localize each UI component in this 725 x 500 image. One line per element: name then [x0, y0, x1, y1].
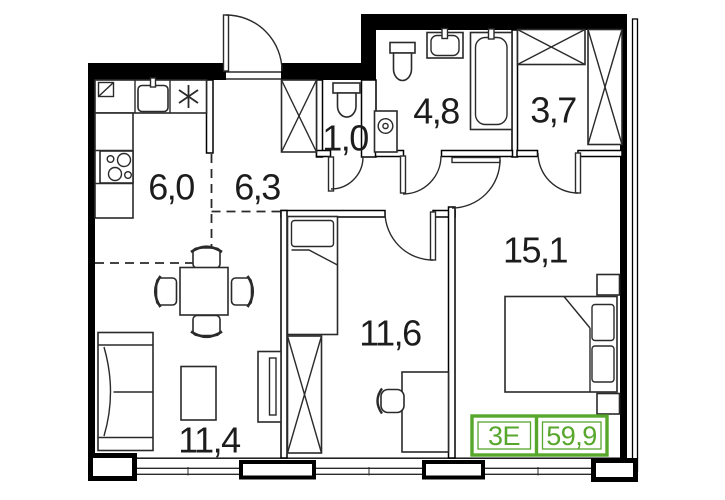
wardrobe-icon [288, 336, 322, 453]
room-label-bedroom: 15,1 [503, 230, 568, 271]
facade-line [633, 19, 638, 471]
toilet-icon [390, 43, 415, 81]
corner-pier-right [594, 461, 636, 480]
coffee-table [181, 367, 216, 421]
dining-chair [155, 276, 176, 307]
floor-plan-image: 6,0 6,3 1,0 4,8 3,7 15,1 11,6 11,4 3E 59… [0, 0, 725, 500]
washing-machine-icon [375, 111, 398, 152]
bedroom-furniture [505, 275, 620, 415]
dining-chair [191, 247, 222, 268]
room-label-bathroom: 4,8 [413, 91, 459, 132]
wall-dressing-bottom [578, 151, 622, 157]
bedroom-door [452, 158, 500, 209]
wall-bedrooms-divider [449, 207, 456, 458]
dining-chair [191, 316, 222, 337]
badge-total-area: 59,9 [546, 421, 597, 451]
bathroom-sink-icon [427, 29, 463, 59]
room-label-living: 11,4 [178, 420, 240, 461]
hall-wardrobe-icon [282, 80, 317, 152]
bathtub-icon [471, 29, 513, 130]
room-label-dressing: 3,7 [530, 90, 576, 131]
room-label-bedroom-2: 11,6 [359, 313, 421, 354]
floor-plan-page: 6,0 6,3 1,0 4,8 3,7 15,1 11,6 11,4 3E 59… [0, 0, 725, 500]
wall-bath-bottom [442, 151, 513, 157]
area-badge: 3E 59,9 [472, 416, 607, 455]
room-label-kitchen: 6,0 [148, 167, 194, 208]
corner-pier-left [91, 456, 135, 479]
double-bed [505, 297, 617, 393]
single-bed [288, 217, 338, 335]
badge-plan-type: 3E [488, 421, 520, 451]
bedroom-2-door [385, 212, 436, 260]
wall-top-right [361, 14, 627, 30]
window-bedroom [485, 467, 591, 476]
wc-toilet-icon [333, 83, 360, 117]
wall-dressing-bottom [517, 151, 538, 157]
sofa [98, 333, 153, 451]
dressing-room-door [538, 153, 581, 193]
wall-kitchen-partial [207, 80, 214, 153]
wc-door [329, 157, 364, 191]
wall-left [88, 63, 95, 458]
desk [402, 372, 449, 452]
wall-bath-dressing [512, 30, 518, 157]
stove-icon [100, 151, 133, 183]
desk-chair [378, 389, 405, 414]
dining-table [180, 268, 228, 316]
dining-table-set [155, 247, 253, 337]
room-label-hallway: 6,3 [234, 167, 280, 208]
entrance-door [224, 15, 283, 71]
window-pier [424, 462, 483, 478]
tv-unit [258, 352, 281, 423]
bathroom-door [401, 156, 442, 194]
bottom-wall-windows [91, 456, 636, 480]
nightstand [597, 275, 620, 296]
nightstand [597, 394, 620, 415]
window-living-room [137, 467, 239, 476]
wall-bedroom2-left [281, 211, 287, 459]
wardrobe-icon [588, 30, 622, 145]
wall-top-kitchen [88, 63, 226, 80]
wardrobe-icon [518, 30, 586, 65]
window-bedroom-2 [316, 467, 422, 476]
room-label-wc: 1,0 [322, 118, 368, 159]
window-pier [241, 462, 314, 478]
dining-chair [232, 276, 253, 307]
